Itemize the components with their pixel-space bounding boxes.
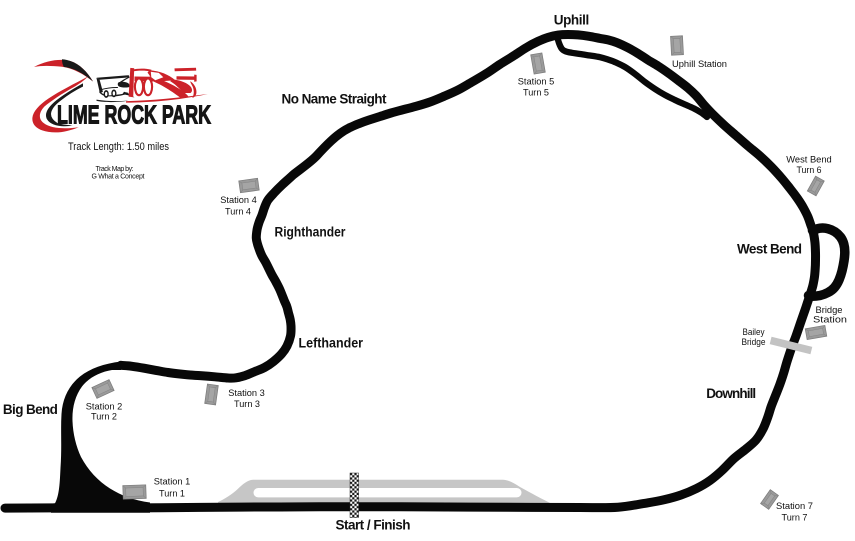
svg-text:Station 3: Station 3 bbox=[228, 388, 265, 398]
svg-text:West Bend: West Bend bbox=[737, 242, 802, 257]
svg-text:Station 5: Station 5 bbox=[518, 77, 555, 87]
svg-text:Station 2: Station 2 bbox=[86, 402, 123, 412]
svg-text:G What a Concept: G What a Concept bbox=[92, 174, 145, 181]
svg-text:Turn 2: Turn 2 bbox=[91, 412, 117, 422]
svg-text:West Bend: West Bend bbox=[786, 155, 832, 165]
svg-text:Track Length: 1.50 miles: Track Length: 1.50 miles bbox=[68, 141, 169, 153]
svg-text:Turn 4: Turn 4 bbox=[225, 207, 251, 217]
svg-text:No Name Straight: No Name Straight bbox=[282, 92, 388, 107]
svg-text:Turn 1: Turn 1 bbox=[159, 488, 185, 498]
svg-text:Turn 7: Turn 7 bbox=[782, 513, 808, 523]
svg-text:Turn 6: Turn 6 bbox=[797, 165, 822, 175]
svg-text:LIME ROCK PARK: LIME ROCK PARK bbox=[57, 100, 211, 130]
svg-text:Bridge: Bridge bbox=[742, 337, 766, 347]
svg-text:Bailey: Bailey bbox=[743, 327, 765, 337]
svg-text:Uphill: Uphill bbox=[554, 12, 590, 27]
svg-text:Station: Station bbox=[813, 315, 847, 325]
svg-text:Station 4: Station 4 bbox=[220, 195, 257, 205]
svg-text:Turn 3: Turn 3 bbox=[234, 399, 260, 409]
svg-text:Big Bend: Big Bend bbox=[3, 402, 58, 417]
svg-text:Track Map by:: Track Map by: bbox=[96, 166, 134, 173]
svg-text:Turn 5: Turn 5 bbox=[523, 88, 549, 98]
svg-text:Station 1: Station 1 bbox=[154, 477, 191, 487]
svg-text:Uphill Station: Uphill Station bbox=[672, 59, 727, 69]
svg-text:Station 7: Station 7 bbox=[776, 501, 813, 511]
svg-text:Downhill: Downhill bbox=[706, 386, 756, 401]
svg-text:Lefthander: Lefthander bbox=[299, 335, 364, 350]
svg-text:Start / Finish: Start / Finish bbox=[336, 518, 411, 533]
svg-text:Bridge: Bridge bbox=[816, 305, 843, 315]
svg-text:Righthander: Righthander bbox=[275, 225, 347, 240]
